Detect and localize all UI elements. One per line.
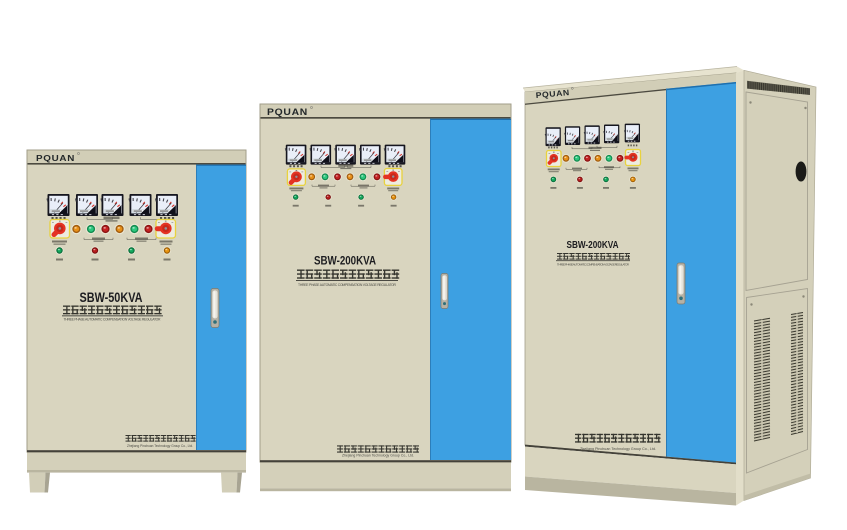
- svg-text:Zhejiang Pinchuan Technology G: Zhejiang Pinchuan Technology Group Co., …: [127, 444, 193, 448]
- svg-text:SBW-200KVA: SBW-200KVA: [567, 240, 619, 251]
- svg-text:PQUAN: PQUAN: [36, 153, 75, 163]
- svg-text:THREE PHASE AUTOMATIC COMPENSA: THREE PHASE AUTOMATIC COMPENSATION VOLTA…: [64, 318, 162, 322]
- svg-text:SBW-200KVA: SBW-200KVA: [314, 254, 376, 268]
- svg-text:SBW-50KVA: SBW-50KVA: [80, 289, 143, 305]
- svg-text:PQUAN: PQUAN: [267, 107, 308, 117]
- svg-text:THREE PHASE AUTOMATIC COMPENSA: THREE PHASE AUTOMATIC COMPENSATION VOLTA…: [298, 283, 397, 287]
- svg-text:Zhejiang Pinchuan Technology G: Zhejiang Pinchuan Technology Group Co., …: [342, 454, 414, 458]
- svg-text:THREE PHASE AUTOMATIC COMPENSA: THREE PHASE AUTOMATIC COMPENSATION VOLTA…: [557, 262, 629, 266]
